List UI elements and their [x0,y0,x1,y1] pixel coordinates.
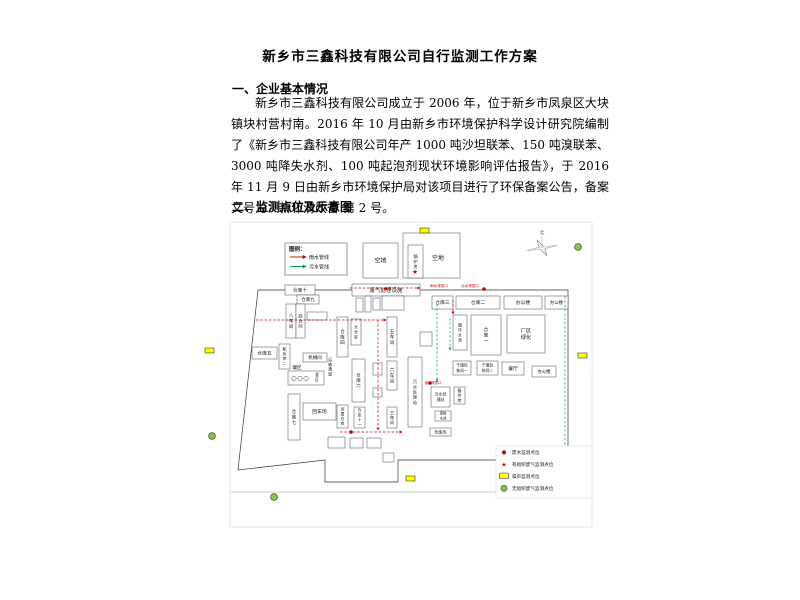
point-legend-label: 噪声监测点位 [512,473,540,480]
document-title: 新乡市三鑫科技有限公司自行监测工作方案 [0,45,800,65]
diagram-label: 仓库六 [356,372,361,390]
wastewater-monitoring-point [482,287,486,291]
diagram-label: 干燥包装间二 [482,363,494,373]
diagram-label: 五车间 [390,329,395,346]
noise-monitoring-point [578,353,587,358]
pipe-legend-label: 污水管线 [309,263,329,270]
stack-gas-monitoring-point: ★ [383,285,389,293]
diagram-label: 仓库十 [293,287,308,294]
legend-stack-gas-star-icon: ★ [501,462,506,469]
diagram-label: 危废库 [435,428,447,434]
building-box [350,438,363,448]
diagram-label: 办公楼 [516,299,531,306]
diagram-label: 办公楼 [538,368,552,375]
diagram-label: 干燥包装间一 [456,363,468,373]
diagram-label: 污水排放口 [461,283,479,288]
north-compass: 北 [522,229,563,259]
wastewater-monitoring-point [349,430,353,434]
building-box [373,388,382,397]
building-box [356,298,363,312]
building-box [373,363,382,375]
diagram-label: 餐厅 [508,365,518,372]
fugitive-gas-monitoring-point [271,494,278,501]
building-box [307,312,327,320]
legend-fugitive-gas-circle-icon [501,485,507,491]
pipe-legend-label: 雨水管线 [309,254,329,261]
diagram-label: 空地 [432,254,444,262]
diagram-label: 八车间 [289,314,294,330]
diagram-label: 回车场 [312,408,327,415]
diagram-label: 雨水排放口 [430,283,448,288]
diagram-label: 仓库三 [435,299,450,306]
diagram-label: 废水排放口 [425,380,441,385]
diagram-label: 办公楼 [550,299,564,306]
legend-noise-rect-icon [500,473,509,479]
diagram-label: 釜区 [315,372,319,382]
point-legend-label: 无组织废气监测点位 [512,485,554,492]
document-page: 新乡市三鑫科技有限公司自行监测工作方案 一、企业基本情况 新乡市三鑫科技有限公司… [0,0,800,600]
diagram-label: 仓库五 [257,350,272,357]
point-legend-label: 有组织废气监测点位 [512,461,554,468]
pipe-legend-title: 图例： [289,245,306,253]
diagram-label: 机械间 [308,354,322,361]
legend-wastewater-dot-icon [502,450,506,454]
building-box [420,332,432,346]
diagram-label: 仓库七 [292,408,297,426]
section-heading-monitoring-points: 二、监测点位及示意图 [232,198,352,215]
building-box [328,437,345,448]
building-box [382,296,404,310]
compass-north-label: 北 [540,229,545,236]
diagram-label: 循环水池 [458,321,462,342]
wastewater-monitoring-point [428,381,432,385]
diagram-label: 六车间 [390,367,395,385]
diagram-label: 闲置仓库 [341,407,345,426]
noise-monitoring-point [406,476,415,481]
factory-layout-diagram: 仓库十仓库九八车间综合间废气处理设施仓库三仓库二办公楼办公楼循环水池仓库一厂区绿… [200,220,595,530]
diagram-label: 厂区绿化 [521,327,531,341]
diagram-label: 仓库十一 [358,408,362,427]
diagram-label: 配件库二 [283,347,287,366]
diagram-label: 仓库九 [301,296,315,303]
building-box [383,453,394,462]
diagram-label: 三车间 [390,410,394,426]
diagram-label: 仓库一 [484,326,489,345]
diagram-label: 事故水池 [440,411,447,421]
diagram-label: 仓库四 [340,328,345,346]
diagram-label: 大仓库 [354,323,358,339]
building-box [367,438,381,448]
diagram-label: 罐区 [293,364,302,371]
building-box [365,296,371,312]
building-box [373,298,380,310]
monitoring-map-figure: 仓库十仓库九八车间综合间废气处理设施仓库三仓库二办公楼办公楼循环水池仓库一厂区绿… [200,220,595,530]
diagram-label: 运输通道 [328,357,332,376]
stack-gas-monitoring-point: ★ [412,268,418,276]
noise-monitoring-point [420,228,429,233]
diagram-label: 备件库 [458,387,462,403]
fugitive-gas-monitoring-point [575,244,582,251]
diagram-label: 仓库二 [471,299,486,306]
diagram-label: 空地 [374,257,386,265]
noise-monitoring-point [205,348,214,353]
point-legend-label: 废水监测点位 [512,449,540,456]
fugitive-gas-monitoring-point [209,433,216,440]
